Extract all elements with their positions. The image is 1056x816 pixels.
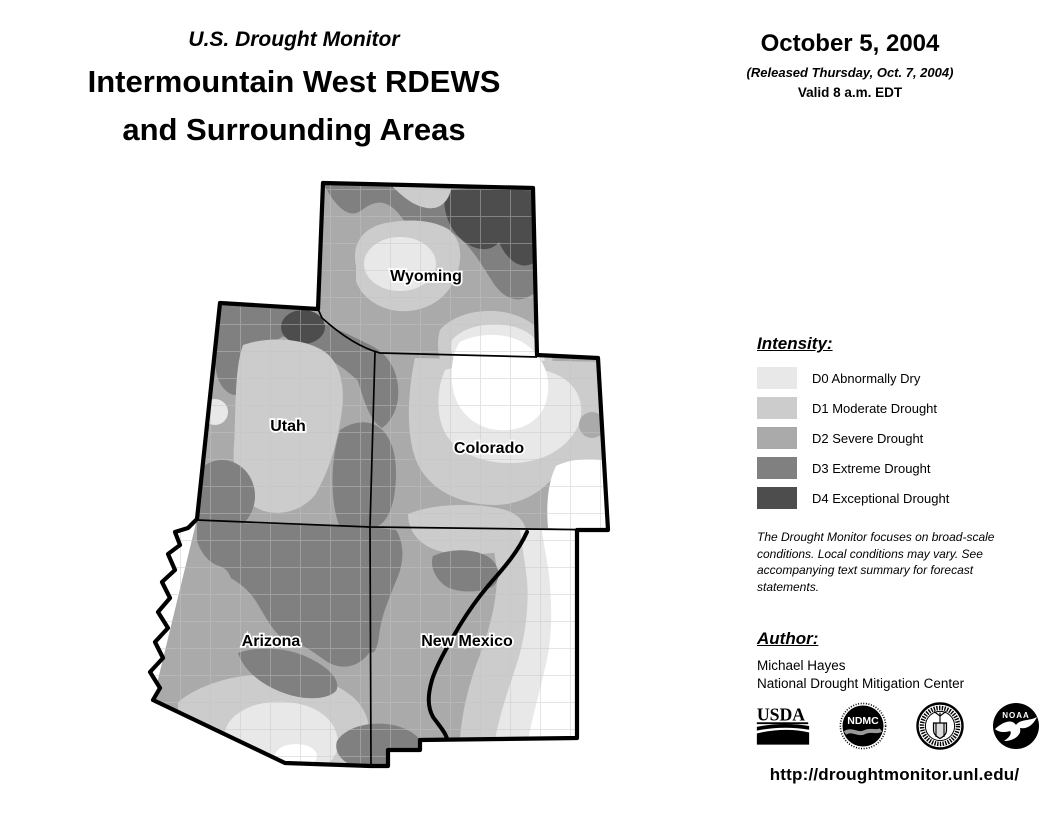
ndmc-logo: NDMC [839,702,887,750]
d2-swatch [757,427,797,449]
author-name: Michael Hayes [757,658,1027,673]
kicker-title: U.S. Drought Monitor [34,28,554,52]
logo-row: USDA NDMC NOAA [755,702,1040,750]
legend-title: Intensity: [757,334,1027,354]
d0-swatch [757,367,797,389]
page-title-line2: and Surrounding Areas [34,106,554,154]
state-label-wyoming: Wyoming [390,268,462,285]
disclaimer-text: The Drought Monitor focuses on broad-sca… [757,529,1007,595]
state-label-utah: Utah [270,418,306,435]
legend-row-d2: D2 Severe Drought [757,423,1027,453]
title-block: U.S. Drought Monitor Intermountain West … [34,28,554,154]
noaa-logo: NOAA [992,702,1040,750]
legend-row-d4: D4 Exceptional Drought [757,483,1027,513]
state-label-arizona: Arizona [242,633,301,650]
legend-rows: D0 Abnormally Dry D1 Moderate Drought D2… [757,363,1027,513]
legend-label: D1 Moderate Drought [812,401,937,416]
author-block: Author: Michael Hayes National Drought M… [757,629,1027,691]
intensity-legend: Intensity: D0 Abnormally Dry D1 Moderate… [757,334,1027,513]
noaa-logo-text: NOAA [1002,711,1030,720]
page-title: Intermountain West RDEWS and Surrounding… [34,58,554,154]
ndmc-logo-text: NDMC [848,715,880,727]
date-block: October 5, 2004 (Released Thursday, Oct.… [700,30,1000,100]
author-organization: National Drought Mitigation Center [757,676,1027,691]
legend-label: D3 Extreme Drought [812,461,931,476]
website-url: http://droughtmonitor.unl.edu/ [742,765,1047,785]
valid-time: Valid 8 a.m. EDT [700,85,1000,100]
author-heading: Author: [757,629,1027,649]
drought-monitor-page: Wyoming Utah Colorado Arizona New Mexico… [0,0,1056,816]
commerce-seal-logo [916,702,964,750]
usda-logo-text: USDA [757,705,805,724]
legend-label: D4 Exceptional Drought [812,491,949,506]
legend-row-d3: D3 Extreme Drought [757,453,1027,483]
page-title-line1: Intermountain West RDEWS [34,58,554,106]
d4-swatch [757,487,797,509]
legend-row-d0: D0 Abnormally Dry [757,363,1027,393]
legend-label: D0 Abnormally Dry [812,371,920,386]
legend-row-d1: D1 Moderate Drought [757,393,1027,423]
released-date: (Released Thursday, Oct. 7, 2004) [700,65,1000,80]
d1-swatch [757,397,797,419]
state-label-new-mexico: New Mexico [421,633,513,650]
d3-swatch [757,457,797,479]
map-date: October 5, 2004 [700,30,1000,58]
usda-logo: USDA [755,705,811,747]
legend-label: D2 Severe Drought [812,431,923,446]
state-label-colorado: Colorado [454,440,524,457]
